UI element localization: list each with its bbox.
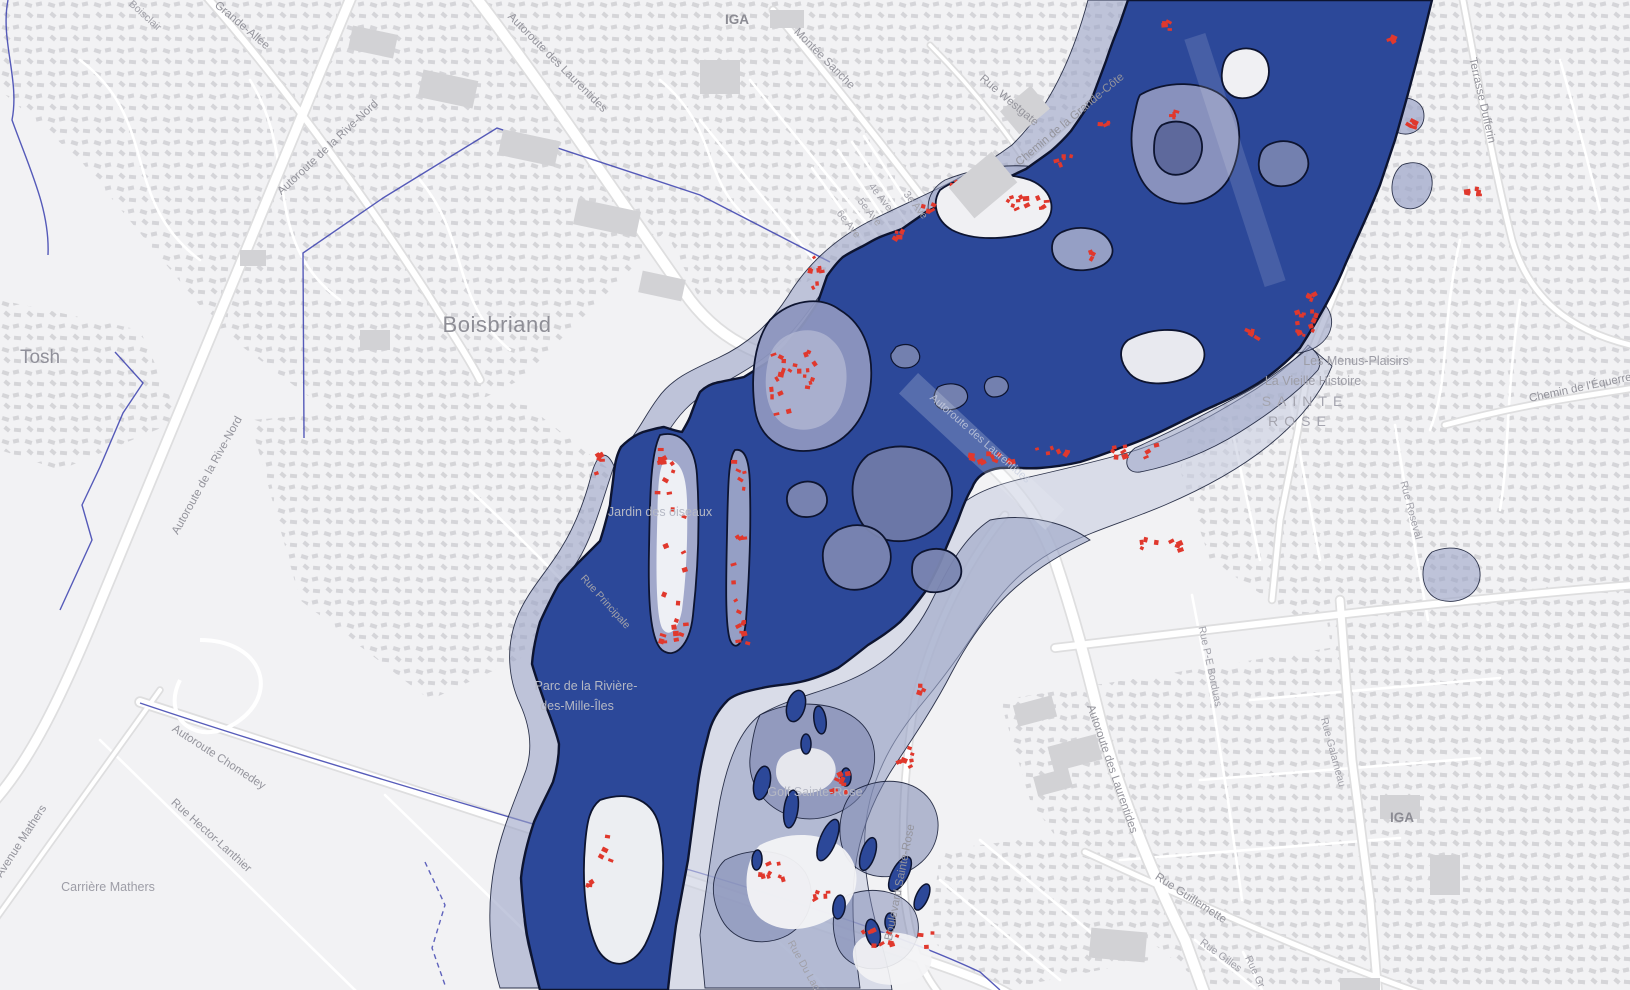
map-label-parc-de-la-rivi-re: Parc de la Rivière- [535,679,638,693]
at-risk-building [1016,199,1021,203]
at-risk-building [1154,540,1159,545]
at-risk-building [673,631,679,637]
at-risk-building [871,943,876,948]
map-label-golf-sainte-rose: Golf Sainte-Rose [767,785,862,799]
at-risk-building [895,230,899,234]
at-risk-building [1161,23,1168,28]
at-risk-building [676,601,681,606]
at-risk-building [1023,196,1030,201]
at-risk-building [917,933,923,937]
at-risk-building [826,891,831,894]
at-risk-building [769,387,774,392]
at-risk-building [731,580,736,584]
at-risk-building [918,684,922,688]
map-label-carri-re-mathers: Carrière Mathers [61,880,155,894]
at-risk-building [1046,451,1051,455]
at-risk-building [770,394,773,399]
map-label-iga: IGA [1390,810,1414,825]
map-label-iga: IGA [725,12,749,27]
at-risk-building [1139,540,1143,545]
map-label-rose: ROSE [1268,413,1332,429]
at-risk-building [845,771,851,776]
at-risk-building [1123,444,1128,448]
at-risk-building [1114,454,1119,459]
at-risk-building [1098,122,1104,126]
at-risk-building [1044,200,1050,203]
at-risk-building [924,945,929,949]
at-risk-building [1172,114,1175,119]
at-risk-building [803,374,807,377]
at-risk-building [658,448,664,451]
at-risk-building [1295,321,1300,326]
at-risk-building [1476,190,1481,195]
at-risk-building [797,369,801,374]
map-label-jardin-des-oiseaux: Jardin des oiseaux [608,505,713,519]
map-label-boisbriand: Boisbriand [443,312,552,337]
map-viewport[interactable]: Grande-AlléeBoisclairAutoroute de la Riv… [0,0,1630,990]
map-label-la-vieille-histoire: La Vieille Histoire [1265,374,1361,388]
at-risk-building [931,931,935,935]
at-risk-building [777,861,781,865]
at-risk-building [1168,28,1172,31]
at-risk-building [815,281,819,286]
map-label-sainte: SAINTE [1262,393,1349,409]
map-canvas[interactable]: Grande-AlléeBoisclairAutoroute de la Riv… [0,0,1630,990]
at-risk-building [683,622,689,626]
map-label-les-menus-plaisirs: Les Menus-Plaisirs [1303,354,1409,368]
at-risk-building [671,624,677,629]
at-risk-building [742,487,746,491]
map-label-des-mille-les: des-Mille-Îles [540,698,614,713]
map-label-tosh: Tosh [20,347,60,368]
at-risk-building [1302,312,1306,315]
at-risk-building [806,368,810,372]
at-risk-building [1310,309,1314,313]
at-risk-building [909,758,914,762]
at-risk-building [823,894,827,899]
at-risk-building [655,491,661,494]
at-risk-building [731,460,737,464]
